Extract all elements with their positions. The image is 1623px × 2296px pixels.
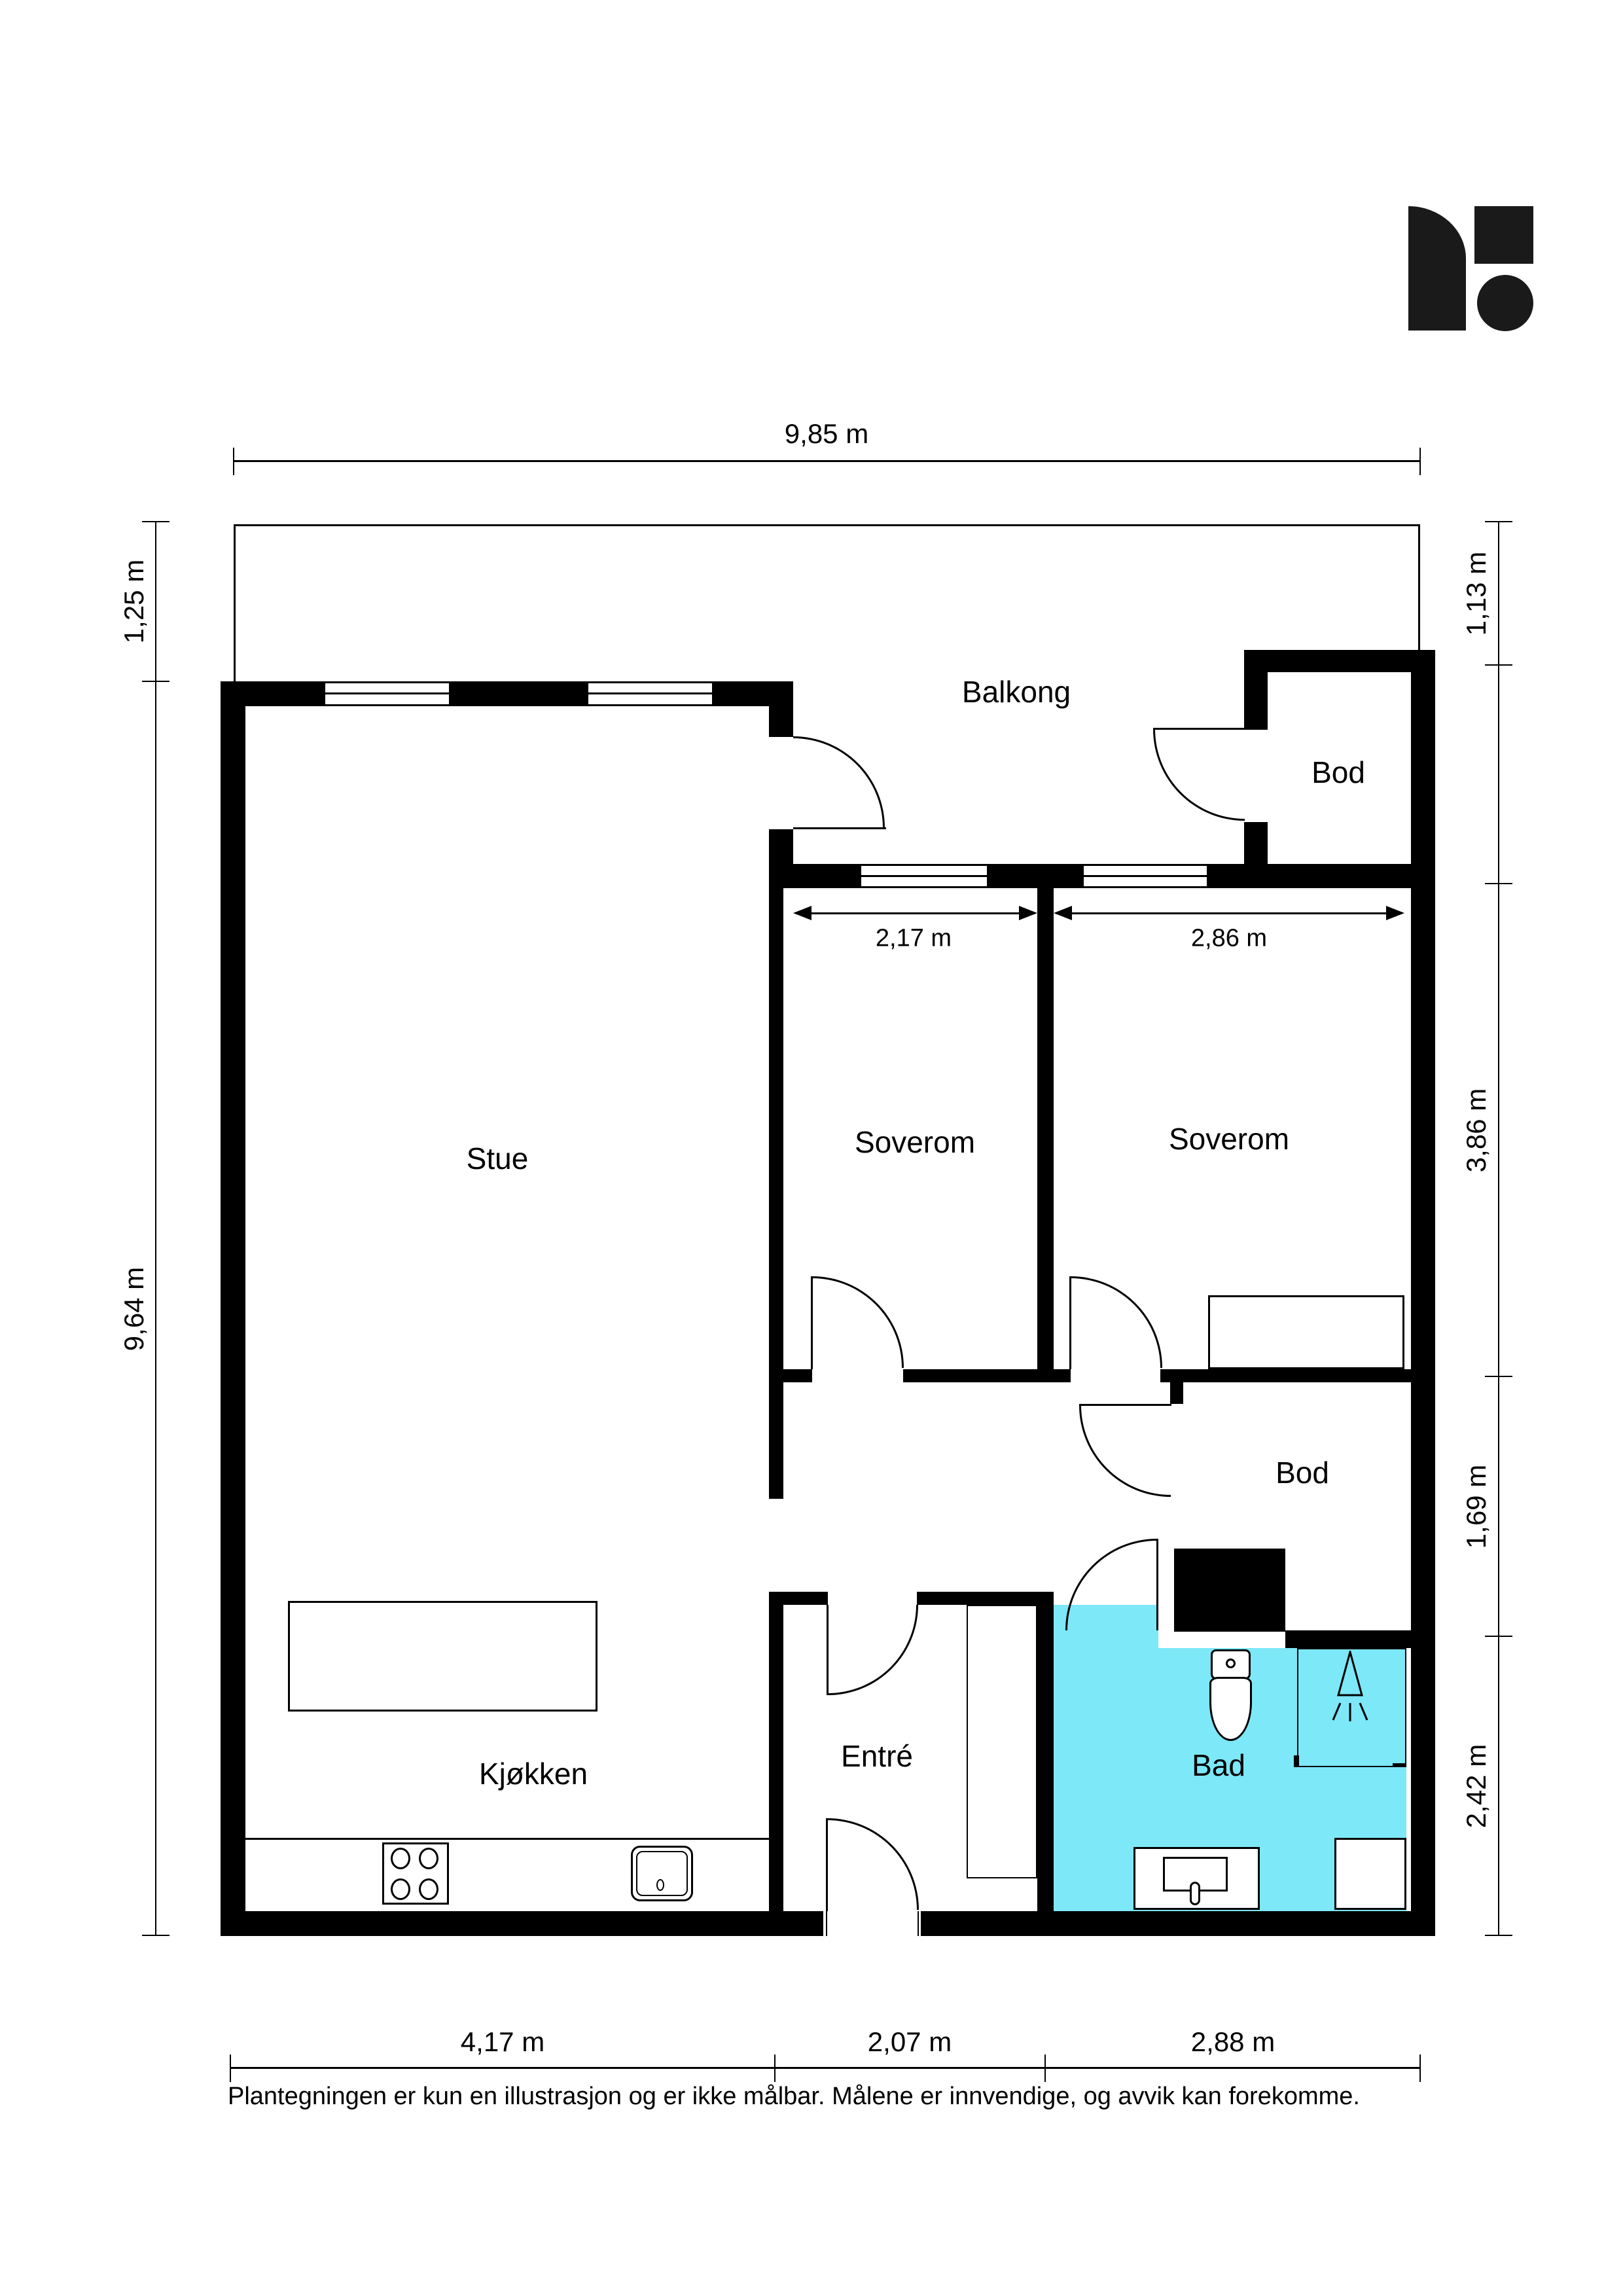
- soverom1-window-midline: [861, 875, 987, 877]
- stove-burner-icon: [419, 1848, 438, 1869]
- washing-machine-fixture: [1334, 1838, 1406, 1910]
- dim-bottom-seg2-label: 2,07 m: [868, 2026, 952, 2058]
- stove-burner-icon: [391, 1878, 410, 1900]
- wall-bedroom-partition: [1037, 888, 1054, 1369]
- disclaimer-text: Plantegningen er kun en illustrasjon og …: [228, 2083, 1360, 2111]
- dim-bottom-tick-4: [1419, 2054, 1421, 2082]
- room-label-bod-middle: Bod: [1275, 1455, 1329, 1490]
- dim-left-tick-3: [142, 1935, 169, 1936]
- bod-middle-door-arc: [1079, 1405, 1171, 1497]
- balcony-door-frame-top: [769, 736, 793, 737]
- stove-burner-icon: [419, 1878, 438, 1900]
- dim-top-label: 9,85 m: [785, 418, 868, 450]
- soverom2-door-frame-l: [1069, 1369, 1071, 1382]
- dim-right-tick-2: [1485, 664, 1512, 666]
- logo-square-shape: [1474, 206, 1533, 264]
- room-label-balkong: Balkong: [962, 674, 1071, 709]
- dim-top-tick-left: [233, 448, 234, 475]
- entre-north-door-opening: [827, 1592, 918, 1605]
- soverom2-dim-arrowhead-right: [1386, 906, 1404, 920]
- dim-left-line: [155, 522, 156, 1936]
- toilet-flush-button: [1226, 1659, 1236, 1668]
- wall-entre-west: [769, 1605, 783, 1911]
- wall-bad-west: [1037, 1592, 1054, 1911]
- dim-left-balcony-label: 1,25 m: [118, 560, 150, 643]
- dim-bottom-seg1-label: 4,17 m: [461, 2026, 544, 2058]
- balcony-door-arc: [793, 736, 885, 828]
- wall-bod-middle-stub: [1170, 1382, 1183, 1404]
- bad-duct-block: [1174, 1549, 1285, 1632]
- soverom1-dim-arrowhead-right: [1019, 906, 1037, 920]
- dim-right-seg1-label: 1,13 m: [1461, 552, 1492, 636]
- dim-bottom-tick-2: [774, 2054, 776, 2082]
- bod-top-door-arc: [1153, 729, 1245, 821]
- stove-fixture: [382, 1842, 449, 1905]
- balcony-outline-top: [234, 524, 1420, 526]
- soverom1-door-frame-l: [811, 1369, 812, 1382]
- wall-left: [221, 681, 245, 1936]
- dim-right-tick-3: [1485, 883, 1512, 884]
- dim-bottom-tick-3: [1044, 2054, 1046, 2082]
- balcony-outline-left: [234, 524, 236, 681]
- soverom2-door-opening: [1069, 1369, 1162, 1382]
- soverom2-door-arc: [1071, 1276, 1162, 1368]
- shower-corner-mark-right: [1393, 1763, 1406, 1767]
- dim-left-height-label: 9,64 m: [118, 1267, 150, 1351]
- logo-circle-shape: [1477, 275, 1533, 331]
- soverom1-door-arc: [812, 1276, 904, 1368]
- dim-bottom-line: [230, 2067, 1420, 2069]
- kitchen-sink-drain: [656, 1879, 664, 1891]
- dim-left-tick-1: [142, 521, 169, 522]
- soverom1-dim-arrow-line: [796, 912, 1035, 914]
- wall-stue-bedroom-divider: [769, 888, 783, 1499]
- dim-right-seg2-label: 3,86 m: [1461, 1088, 1492, 1172]
- soverom1-door-opening: [811, 1369, 904, 1382]
- bad-door-arc: [1065, 1539, 1157, 1630]
- wall-bod-top-north: [1244, 650, 1435, 672]
- entrance-door-opening: [823, 1911, 921, 1936]
- soverom2-dim-arrowhead-left: [1054, 906, 1072, 920]
- soverom2-width-label: 2,86 m: [1191, 925, 1267, 953]
- soverom1-door-frame-r: [903, 1369, 904, 1382]
- entre-north-door-frame-r: [917, 1592, 918, 1605]
- kitchen-island: [288, 1601, 597, 1712]
- soverom1-dim-arrowhead-left: [793, 906, 811, 920]
- dim-right-seg4-label: 2,42 m: [1461, 1744, 1492, 1828]
- shower-icon: [1327, 1651, 1373, 1729]
- dim-top-line: [234, 460, 1420, 462]
- soverom2-window-midline: [1084, 875, 1207, 877]
- room-label-bad: Bad: [1192, 1748, 1245, 1783]
- wall-stue-east-lower: [769, 831, 793, 864]
- bathroom-vanity-faucet: [1190, 1882, 1200, 1905]
- dim-right-tick-6: [1485, 1935, 1512, 1936]
- bathroom-vanity-cabinet: [1133, 1847, 1260, 1910]
- stue-window-1-midline: [325, 692, 449, 694]
- entrance-door-frame-l: [826, 1911, 827, 1936]
- stue-window-2-midline: [588, 692, 712, 694]
- entrance-door-arc: [827, 1818, 919, 1910]
- dim-right-seg3-label: 1,69 m: [1461, 1465, 1492, 1549]
- floor-plan-canvas: 2,17 m 2,86 m Balkong Bod Stue Soverom S…: [0, 0, 1623, 2296]
- dim-left-tick-2: [142, 681, 169, 682]
- entre-north-door-arc: [828, 1605, 918, 1695]
- wall-stue-east-stub: [769, 706, 793, 736]
- logo-sail-shape: [1408, 206, 1466, 331]
- room-label-entre: Entré: [841, 1738, 913, 1774]
- dim-right-line: [1498, 522, 1499, 1936]
- entrance-door-frame-r: [918, 1911, 919, 1936]
- soverom1-width-label: 2,17 m: [876, 925, 952, 953]
- dim-top-tick-right: [1419, 448, 1421, 475]
- wall-right: [1411, 650, 1435, 1936]
- room-label-kjokken: Kjøkken: [479, 1756, 588, 1791]
- wall-bod-top-west-upper: [1244, 672, 1268, 730]
- wall-bad-north-east: [1285, 1630, 1411, 1648]
- dim-right-tick-4: [1485, 1376, 1512, 1377]
- stove-burner-icon: [391, 1848, 410, 1869]
- kitchen-sink-fixture: [631, 1846, 693, 1901]
- room-label-soverom2: Soverom: [1169, 1121, 1289, 1157]
- room-label-stue: Stue: [467, 1141, 529, 1176]
- soverom2-door-frame-r: [1160, 1369, 1162, 1382]
- shower-corner-mark-left: [1294, 1755, 1299, 1767]
- soverom2-dim-arrow-line: [1056, 912, 1402, 914]
- dim-right-tick-5: [1485, 1636, 1512, 1637]
- balcony-outline-right: [1418, 524, 1420, 651]
- dim-bottom-tick-1: [230, 2054, 231, 2082]
- kitchen-counter-edge: [245, 1838, 769, 1840]
- soverom2-wardrobe: [1208, 1295, 1404, 1369]
- entre-closet: [967, 1605, 1037, 1878]
- dim-bottom-seg3-label: 2,88 m: [1191, 2026, 1275, 2058]
- dim-right-tick-1: [1485, 521, 1512, 522]
- room-label-soverom1: Soverom: [855, 1124, 975, 1160]
- room-label-bod-top: Bod: [1311, 755, 1365, 790]
- entre-north-door-frame-l: [827, 1592, 828, 1605]
